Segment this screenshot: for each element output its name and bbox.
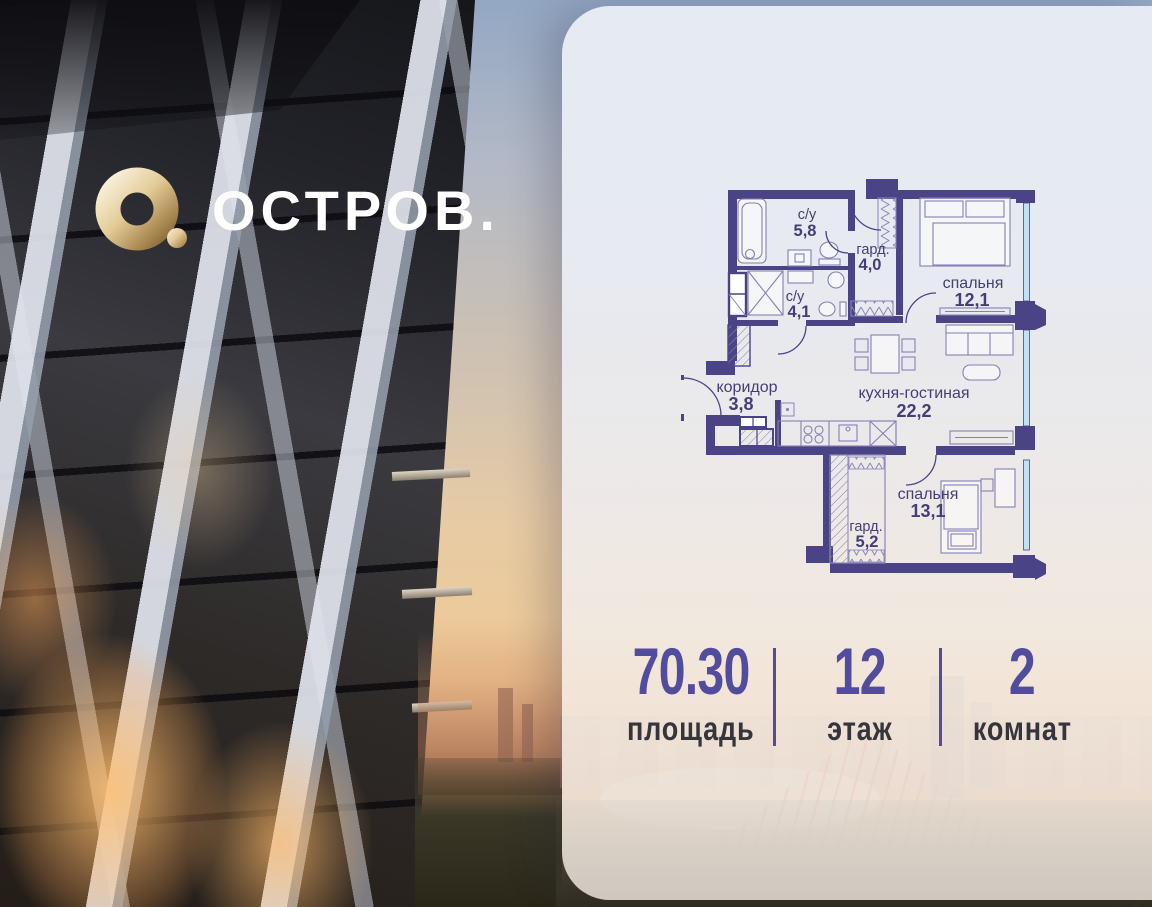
trees [415, 758, 562, 907]
toilet [819, 302, 835, 316]
room-area: 5,8 [794, 222, 817, 240]
chair [981, 479, 993, 491]
kitchen-counter [778, 421, 896, 446]
stat-area: 70.30 площадь [606, 638, 776, 748]
stat-rooms: 2 комнат [937, 638, 1107, 748]
coffee-table [963, 365, 1000, 380]
rooms-value: 2 [1009, 638, 1035, 704]
room-name: кухня-гостиная [858, 385, 969, 402]
unit-info-card[interactable]: с/у 5,8 гард. 4,0 спальня 12,1 с/у 4,1 к… [562, 6, 1152, 900]
room-area: 4,0 [859, 256, 882, 274]
chair [855, 357, 868, 370]
area-label: площадь [627, 710, 754, 748]
brand-logo: ОСТРОВ. [90, 157, 510, 267]
room-area: 5,2 [856, 533, 879, 551]
room-area: 4,1 [788, 303, 811, 321]
floor-label: этаж [827, 710, 892, 748]
rooms-label: комнат [973, 710, 1072, 748]
distant-tower [522, 704, 533, 762]
chair [902, 357, 915, 370]
window [1024, 460, 1030, 550]
room-area: 13,1 [910, 501, 945, 521]
logo-ring-icon [108, 180, 166, 238]
area-value: 70.30 [633, 638, 750, 704]
chair [902, 339, 915, 352]
basin [828, 272, 844, 288]
windows [1024, 203, 1030, 550]
sofa [946, 325, 1013, 355]
logo-dot-icon [167, 228, 187, 248]
room-area: 12,1 [954, 290, 989, 310]
room-name: с/у [798, 207, 817, 223]
window [1024, 203, 1030, 301]
toilet [820, 242, 838, 258]
chair [855, 339, 868, 352]
floor-value: 12 [834, 638, 886, 704]
room-area: 22,2 [896, 401, 931, 421]
sink-cabinet [788, 250, 811, 266]
distant-tower [498, 688, 513, 762]
dining-table [871, 335, 899, 373]
floor-plan: с/у 5,8 гард. 4,0 спальня 12,1 с/у 4,1 к… [663, 173, 1067, 597]
window [1024, 330, 1030, 426]
stat-floor: 12 этаж [775, 638, 945, 748]
sink-cabinet [788, 271, 813, 283]
room-area: 3,8 [728, 394, 753, 414]
listing-card-screenshot: ОСТРОВ. [0, 0, 1152, 907]
brand-name: ОСТРОВ. [212, 179, 500, 242]
desk [995, 469, 1015, 507]
